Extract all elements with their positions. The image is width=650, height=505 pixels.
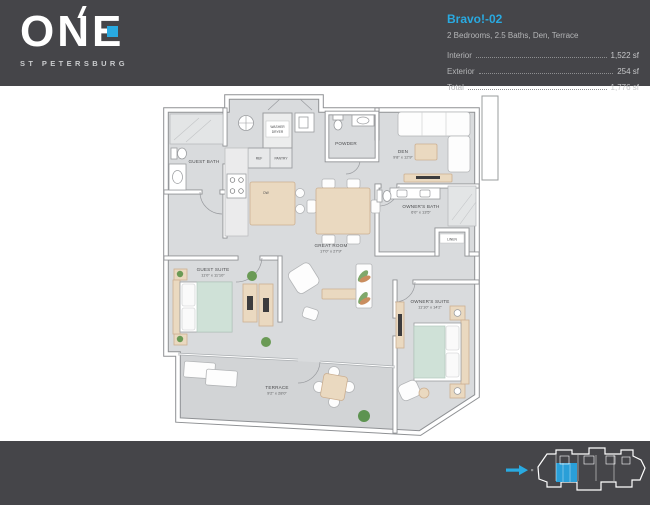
exterior-column <box>482 96 498 180</box>
toilet-icon <box>171 148 177 159</box>
headboard <box>173 280 180 334</box>
area-label: Exterior <box>447 67 475 76</box>
label-powder: POWDER <box>335 141 357 146</box>
label-washer: WASHER <box>270 125 285 129</box>
building-footprint <box>538 448 645 490</box>
dots-leader <box>476 57 607 58</box>
floor-plan: WASHER DRYER REF PANTRY DW <box>0 86 650 441</box>
core-block <box>606 456 615 464</box>
label-great-room: GREAT ROOM <box>315 243 348 248</box>
den-coffee-table <box>415 144 437 160</box>
dims-great-room: 17'0" x 27'9" <box>320 249 343 254</box>
side-table <box>419 388 429 398</box>
dims-owners-bath: 6'0" x 13'5" <box>411 210 431 215</box>
core-block <box>584 456 594 464</box>
label-linen: LINEN <box>447 238 457 242</box>
plant-icon <box>358 410 370 422</box>
stove-icon <box>227 174 246 198</box>
dining-set <box>307 179 380 244</box>
unit-info-panel: Bravo!-02 2 Bedrooms, 2.5 Baths, Den, Te… <box>447 12 639 95</box>
shower <box>170 114 223 144</box>
label-ref: REF <box>256 157 263 161</box>
toilet-icon <box>383 191 391 202</box>
headboard <box>461 320 469 384</box>
area-label: Interior <box>447 51 472 60</box>
tv-icon <box>398 314 402 336</box>
unit-title: Bravo!-02 <box>447 12 639 26</box>
label-guest-bath: GUEST BATH <box>189 159 220 164</box>
label-terrace: TERRACE <box>265 385 288 390</box>
unit-summary: 2 Bedrooms, 2.5 Baths, Den, Terrace <box>447 31 639 40</box>
label-pantry: PANTRY <box>274 157 288 161</box>
dims-terrace: 9'2" x 28'0" <box>267 391 287 396</box>
den-sofa <box>398 112 470 136</box>
core-block <box>560 456 569 464</box>
foyer-art <box>295 113 314 132</box>
stool <box>296 189 305 198</box>
area-row-exterior: Exterior 254 sf <box>447 63 639 79</box>
stool <box>296 205 305 214</box>
tv-icon <box>416 176 440 179</box>
unit-locator-arrow <box>506 465 533 475</box>
double-vanity <box>390 188 440 199</box>
washer-dryer-closet: WASHER DRYER <box>263 113 292 148</box>
brand-logo: ONE ST PETERSBURG <box>20 10 180 68</box>
label-dw: DW <box>263 191 269 195</box>
logo-blue-square <box>107 26 118 37</box>
building-key-plan <box>0 441 650 505</box>
brand-subtitle: ST PETERSBURG <box>20 59 180 68</box>
dots-leader <box>479 73 614 74</box>
label-owners-suite: OWNER'S SUITE <box>411 299 450 304</box>
area-value: 254 sf <box>617 67 639 76</box>
plant-icon <box>247 271 257 281</box>
ref-pantry: REF PANTRY <box>248 148 292 168</box>
label-dryer: DRYER <box>272 130 284 134</box>
header-bar: ONE ST PETERSBURG Bravo!-02 2 Bedrooms, … <box>0 0 650 86</box>
plant-icon <box>261 337 271 347</box>
kitchen-island <box>250 182 295 225</box>
dims-owners-suite: 11'10" x 14'2" <box>418 305 442 310</box>
label-den: DEN <box>398 149 408 154</box>
area-row-interior: Interior 1,522 sf <box>447 47 639 63</box>
dims-guest-suite: 11'0" x 11'10" <box>201 273 225 278</box>
unit-highlight <box>556 463 577 482</box>
label-owners-bath: OWNER'S BATH <box>402 204 439 209</box>
toilet-icon <box>334 120 342 130</box>
terrace-table <box>320 373 348 401</box>
dims-den: 9'8" x 12'9" <box>393 155 413 160</box>
core-block <box>622 457 630 464</box>
linen-closet: LINEN <box>440 234 464 243</box>
dining-table <box>316 188 370 234</box>
area-value: 1,522 sf <box>611 51 639 60</box>
console-table <box>322 289 359 299</box>
brand-name: ONE <box>20 10 180 54</box>
label-guest-suite: GUEST SUITE <box>197 267 230 272</box>
lounge-chair <box>205 369 237 387</box>
vanity <box>169 164 186 190</box>
